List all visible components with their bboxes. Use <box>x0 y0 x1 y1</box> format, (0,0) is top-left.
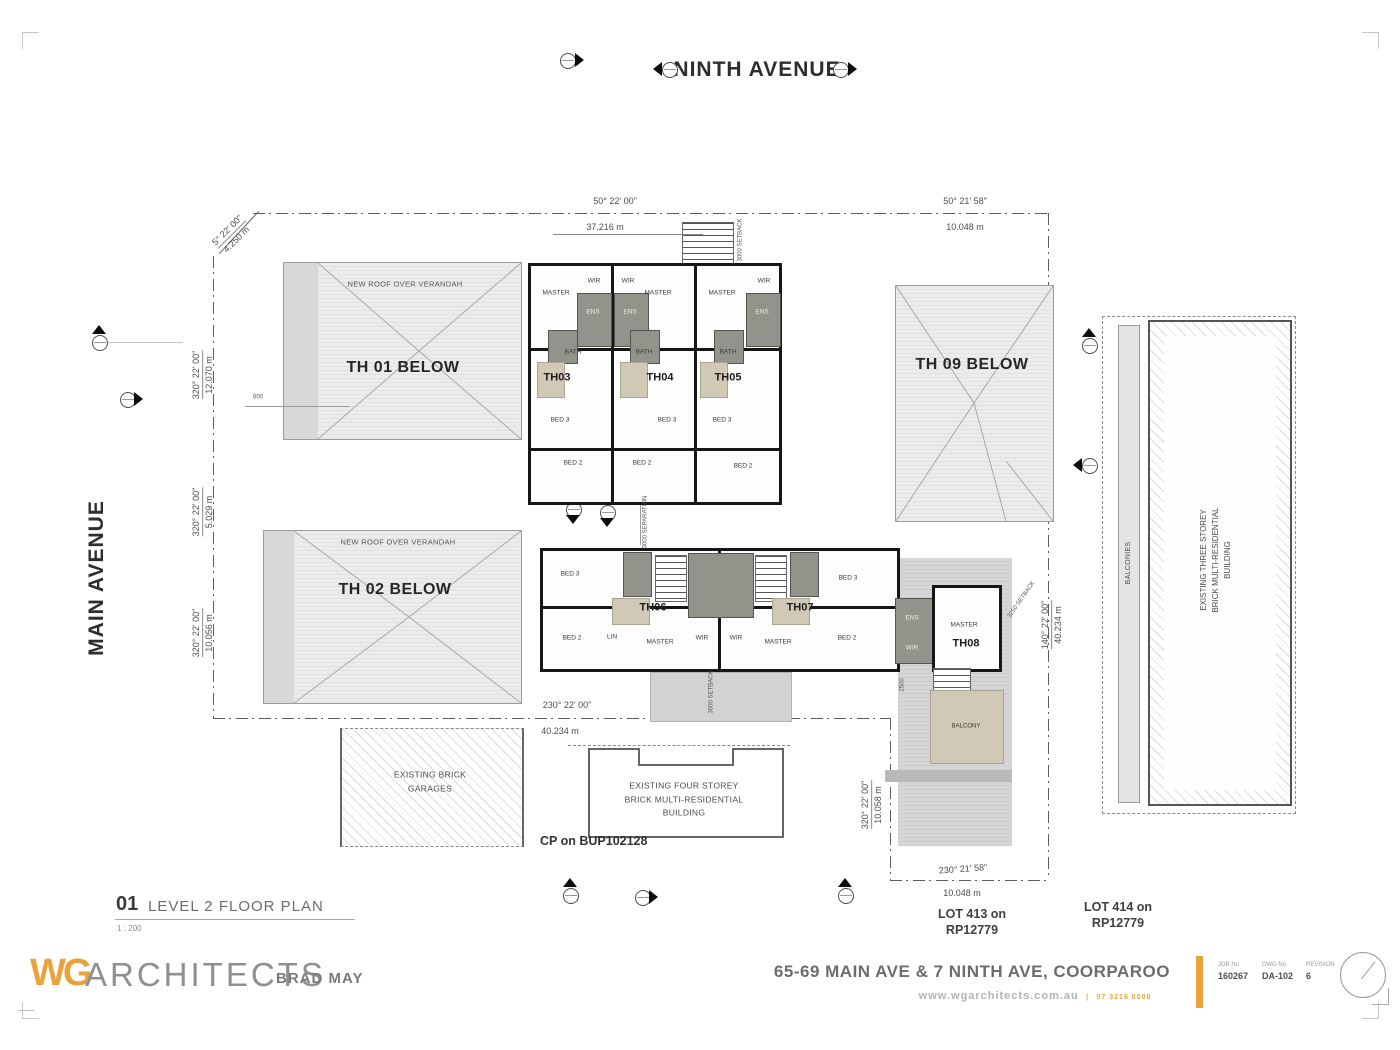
section-marker-arrow-icon <box>848 62 857 76</box>
crop-mark <box>1362 32 1379 49</box>
dim-left2-angle: 320° 22' 00" <box>191 488 201 537</box>
dim-bottom-angle: 230° 22' 00" <box>543 700 592 710</box>
unit-label-th09: TH 09 BELOW <box>915 356 1028 374</box>
job-number-block: JOB No 160267 <box>1218 962 1248 981</box>
room-label-balcony: BALCONY <box>952 724 981 731</box>
landing <box>620 362 648 398</box>
four-storey-building-label: EXISTING FOUR STOREY BRICK MULTI-RESIDEN… <box>625 780 744 821</box>
dwg-value: DA-102 <box>1262 971 1293 981</box>
boundary-line-south-jog <box>890 718 891 880</box>
title-underline <box>115 919 355 920</box>
room-label-bath: BATH <box>636 348 653 355</box>
dim-left3-length: 10.056 m <box>203 609 215 658</box>
room-label-bed2: BED 2 <box>633 459 652 466</box>
four-storey-line2: BRICK MULTI-RESIDENTIAL <box>625 793 744 807</box>
revision-label: REVISION <box>1306 962 1335 969</box>
terrace <box>650 672 792 722</box>
room-label-wir: WIR <box>758 277 771 284</box>
room-label-wir: WIR <box>906 644 919 651</box>
bath-wet-area <box>790 552 819 597</box>
room-label-master: MASTER <box>764 638 791 645</box>
room-label-bath: BATH <box>565 348 582 355</box>
unit-label-th02: TH 02 BELOW <box>338 581 451 599</box>
garages-line1: EXISTING BRICK <box>394 768 466 782</box>
three-storey-line3: BUILDING <box>1222 507 1234 612</box>
separation-label: 3000 SEPARATION <box>643 496 650 549</box>
ensuite-wet-area <box>577 293 612 347</box>
unit-label-th08: TH08 <box>953 638 980 651</box>
website: www.wgarchitects.com.au <box>919 990 1079 1002</box>
room-label-bed2: BED 2 <box>564 459 583 466</box>
section-marker-icon <box>92 335 108 351</box>
room-label-master: MASTER <box>950 621 977 628</box>
four-storey-line3: BUILDING <box>625 807 744 821</box>
party-wall <box>694 263 697 505</box>
section-marker-arrow-icon <box>134 392 143 406</box>
street-label-ninth-avenue: NINTH AVENUE <box>673 58 840 82</box>
cp-label: CP on BUP102128 <box>540 834 647 848</box>
dim-br-vert: 320° 22' 00" 10.058 m <box>860 781 884 830</box>
lot-414-label: LOT 414 on RP12779 <box>1084 899 1152 932</box>
three-storey-line1: EXISTING THREE STOREY <box>1198 507 1210 612</box>
dim-right-length: 40.234 m <box>1052 601 1064 650</box>
section-marker-icon <box>833 62 849 78</box>
title-block-corner <box>1372 988 1389 1005</box>
room-label-wir: WIR <box>696 634 709 641</box>
bath-wet-area <box>623 552 652 597</box>
dim-top-length: 37.216 m <box>586 222 624 232</box>
dim-top-right-length: 10.048 m <box>946 222 984 232</box>
revision-block: REVISION 6 <box>1306 962 1335 981</box>
dim-left1: 320° 22' 00" 12.070 m <box>191 351 215 400</box>
section-marker-icon <box>1082 458 1098 474</box>
roof-hip-lines <box>896 286 1053 521</box>
room-label-master: MASTER <box>542 289 569 296</box>
roof-th09 <box>895 285 1054 522</box>
dim-top-right-angle: 50° 21' 58" <box>943 196 987 206</box>
section-marker-icon <box>563 888 579 904</box>
project-address: 65-69 MAIN AVE & 7 NINTH AVE, COORPAROO <box>774 962 1170 982</box>
setback-top-label: 3000 SETBACK <box>738 218 745 261</box>
roof-hip-lines <box>264 531 521 703</box>
four-storey-line1: EXISTING FOUR STOREY <box>625 780 744 794</box>
architect-name: BRAD MAY <box>276 970 363 987</box>
dim-left3-angle: 320° 22' 00" <box>191 609 201 658</box>
dim-line <box>553 234 703 235</box>
job-value: 160267 <box>1218 971 1248 981</box>
boundary-line-north <box>253 213 1050 214</box>
lot414-line1: LOT 414 on <box>1084 899 1152 915</box>
bath-wet-area <box>548 330 578 364</box>
dim-left2: 320° 22' 00" 5.029 m <box>191 488 215 537</box>
dim-br-vert-angle: 320° 22' 00" <box>860 781 870 830</box>
lot413-line1: LOT 413 on <box>938 906 1006 922</box>
brick-garages-label: EXISTING BRICK GARAGES <box>394 768 466 795</box>
garages-line2: GARAGES <box>394 782 466 796</box>
interior-wall <box>531 448 779 451</box>
neighbour-boundary-dashed <box>568 745 790 747</box>
section-marker-arrow-icon <box>575 53 584 67</box>
dwg-label: DWG No <box>1262 962 1293 969</box>
unit-label-th03: TH03 <box>544 372 571 385</box>
footer-tick <box>18 1010 34 1011</box>
marker-leader-line <box>108 342 183 343</box>
dim-right-angle: 140° 22' 00" <box>1040 601 1050 650</box>
section-marker-arrow-icon <box>1082 328 1096 337</box>
room-label-bath: BATH <box>720 348 737 355</box>
section-marker-arrow-icon <box>600 518 614 527</box>
room-label-lin: LIN <box>607 633 617 640</box>
drawing-title: LEVEL 2 FLOOR PLAN <box>148 898 324 915</box>
setback-bottom-label: 3000 SETBACK <box>709 670 716 713</box>
dim-right: 140° 22' 00" 40.234 m <box>1040 601 1064 650</box>
section-marker-icon <box>662 62 678 78</box>
unit-label-th06: TH06 <box>640 602 667 615</box>
section-marker-icon <box>838 888 854 904</box>
dim-line <box>640 505 641 545</box>
room-label-bed3: BED 3 <box>561 570 580 577</box>
room-label-wir: WIR <box>622 277 635 284</box>
dim-left1-angle: 320° 22' 00" <box>191 351 201 400</box>
stairs <box>755 555 787 602</box>
four-storey-top-wall <box>590 748 638 750</box>
boundary-line-south-east <box>890 880 1048 881</box>
section-marker-arrow-icon <box>653 62 662 76</box>
street-label-main-avenue: MAIN AVENUE <box>85 500 109 656</box>
four-storey-notch-wall <box>732 748 734 764</box>
roof-th02 <box>263 530 522 704</box>
room-label-ens: ENS <box>905 614 918 621</box>
dim-2500: 2500 <box>900 678 907 691</box>
dim-left3: 320° 22' 00" 10.056 m <box>191 609 215 658</box>
dim-br-horiz-angle: 230° 21' 58" <box>938 862 987 876</box>
roof-hip-lines <box>284 263 521 439</box>
dim-top-angle: 50° 22' 00" <box>593 196 637 206</box>
accent-bar <box>1196 956 1203 1008</box>
room-label-wir: WIR <box>588 277 601 284</box>
section-marker-arrow-icon <box>563 878 577 887</box>
room-label-bed2: BED 2 <box>563 634 582 641</box>
room-label-ens: ENS <box>623 308 636 315</box>
room-label-bed3: BED 3 <box>551 416 570 423</box>
drawing-scale: 1 : 200 <box>117 924 141 933</box>
section-marker-arrow-icon <box>838 878 852 887</box>
room-label-bed2: BED 2 <box>838 634 857 641</box>
bath-wet-area <box>630 330 660 364</box>
unit-label-th05: TH05 <box>715 372 742 385</box>
room-label-bed3: BED 3 <box>713 416 732 423</box>
bath-wet-area <box>714 330 744 364</box>
phone: | <box>1083 994 1092 1001</box>
crop-mark <box>22 32 39 49</box>
roof-annotation: NEW ROOF OVER VERANDAH <box>348 281 463 290</box>
drawing-number: 01 <box>116 893 138 916</box>
unit-label-th07: TH07 <box>787 602 814 615</box>
room-label-master: MASTER <box>644 289 671 296</box>
unit-label-th01: TH 01 BELOW <box>346 359 459 377</box>
lot414-line2: RP12779 <box>1084 915 1152 931</box>
ensuite-wet-area <box>895 598 934 664</box>
dim-600: 600 <box>253 395 263 402</box>
dwg-number-block: DWG No DA-102 <box>1262 962 1293 981</box>
dim-line <box>245 406 350 407</box>
balconies-label: BALCONIES <box>1125 542 1133 585</box>
room-label-bed2: BED 2 <box>734 462 753 469</box>
phone-number: 07 3216 0000 <box>1097 994 1152 1001</box>
four-storey-top-wall <box>734 748 782 750</box>
room-label-ens: ENS <box>755 308 768 315</box>
section-marker-arrow-icon <box>566 515 580 524</box>
dim-left2-length: 5.029 m <box>203 488 215 537</box>
stairs <box>655 555 687 602</box>
revision-value: 6 <box>1306 971 1335 981</box>
room-label-ens: ENS <box>586 308 599 315</box>
room-label-master: MASTER <box>646 638 673 645</box>
section-marker-icon <box>1082 338 1098 354</box>
room-label-bed3: BED 3 <box>658 416 677 423</box>
three-storey-line2: BRICK MULTI-RESIDENTIAL <box>1210 507 1222 612</box>
three-storey-building-label: EXISTING THREE STOREY BRICK MULTI-RESIDE… <box>1198 507 1234 612</box>
lot-413-label: LOT 413 on RP12779 <box>938 906 1006 939</box>
section-marker-arrow-icon <box>92 325 106 334</box>
ensuite-wet-area <box>746 293 781 347</box>
ensuite-wet-area <box>688 553 754 618</box>
dim-left1-length: 12.070 m <box>203 351 215 400</box>
four-storey-notch-wall <box>638 764 734 766</box>
room-label-master: MASTER <box>708 289 735 296</box>
roof-annotation: NEW ROOF OVER VERANDAH <box>341 539 456 548</box>
four-storey-notch-wall <box>638 748 640 764</box>
room-label-wir: WIR <box>730 634 743 641</box>
section-marker-arrow-icon <box>649 890 658 904</box>
lot413-line2: RP12779 <box>938 922 1006 938</box>
entry-stairs <box>682 222 734 264</box>
wg-logo: WG <box>30 952 89 996</box>
unit-label-th04: TH04 <box>647 372 674 385</box>
section-marker-icon <box>560 53 576 69</box>
dim-splay: 5° 22' 00" 4.250 m <box>210 213 254 257</box>
job-label: JOB No <box>1218 962 1248 969</box>
dim-bottom-length: 40.234 m <box>541 726 579 736</box>
footer-contact: www.wgarchitects.com.au | 07 3216 0000 <box>919 986 1152 1004</box>
roof-ridge-band <box>885 770 1012 782</box>
dim-br-vert-length: 10.058 m <box>872 781 884 830</box>
section-marker-arrow-icon <box>1073 458 1082 472</box>
room-label-bed3: BED 3 <box>839 574 858 581</box>
dim-br-horiz-length: 10.048 m <box>943 888 981 898</box>
